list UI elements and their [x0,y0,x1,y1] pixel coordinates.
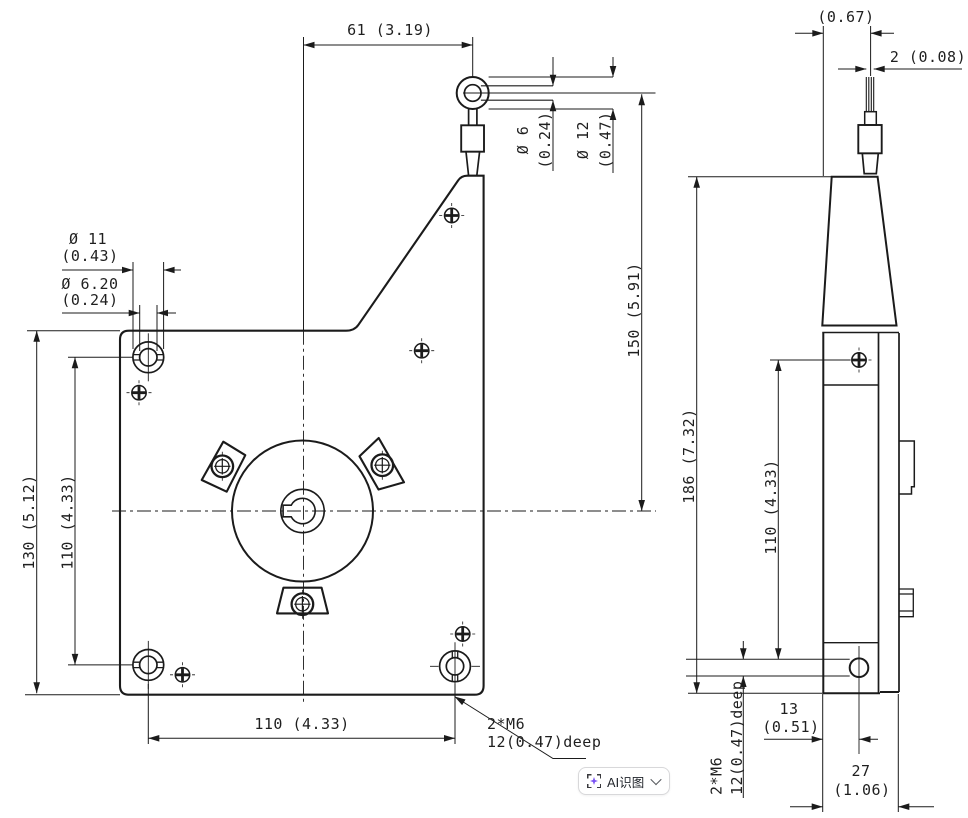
dim-label: (0.67) [817,8,874,26]
dim-label: (0.47) [597,111,615,168]
connector-tab-lower [899,589,913,617]
dim-label: Ø 12 [574,121,592,159]
dim-label: Ø 11 [69,230,107,248]
dim-label: (0.24) [61,291,118,309]
front-view: 61 (3.19) Ø 6 (0.24) Ø 12 (0.47) 150 (5.… [20,21,656,759]
dim-label: 130 (5.12) [20,474,38,569]
dim-label: (1.06) [833,781,890,799]
dim-side-bottom: 13 (0.51) 27 (1.06) [762,694,934,812]
dim-label: 27 [851,762,870,780]
screw-cross [450,622,475,647]
dim-pin-height: 150 (5.91) [625,94,645,511]
thread-note: 12(0.47)deep [487,733,601,751]
side-view: (0.67) 2 (0.08) 186 (7.32) 110 (4.33) 2*… [680,8,966,812]
dim-label: (0.24) [536,111,554,168]
dim-label: 13 [779,700,798,718]
dim-side-top: (0.67) 2 (0.08) [795,8,966,176]
dim-front-heights: 130 (5.12) 110 (4.33) [20,331,133,695]
thread-note: 2*M6 [708,757,726,795]
dim-label: 61 (3.19) [347,21,433,39]
corner-hole-bottom-right [430,642,480,690]
thread-note: 12(0.47)deep [728,681,746,795]
thread-note: 2*M6 [487,715,525,733]
dim-side-hole-spacing: 110 (4.33) [762,360,851,659]
corner-hole-top-left [133,333,164,381]
chevron-down-icon [651,774,662,785]
technical-drawing: 61 (3.19) Ø 6 (0.24) Ø 12 (0.47) 150 (5.… [0,0,968,818]
dim-label: Ø 6 [514,126,532,155]
ai-sparkle-icon [587,774,601,788]
front-body-outline [120,176,484,695]
side-body [822,177,914,754]
dim-side-total-height: 186 (7.32) [680,177,832,694]
front-centerlines [112,331,656,704]
dim-pin-diameters: Ø 6 (0.24) Ø 12 (0.47) [514,57,616,173]
dim-label: (0.51) [762,718,819,736]
dim-front-top-width: 61 (3.19) [304,21,473,331]
dim-label: 186 (7.32) [680,408,698,503]
side-plunger [858,77,881,174]
screw-cross [439,203,464,228]
dim-label: 110 (4.33) [762,459,780,554]
dim-label: 110 (4.33) [59,474,77,569]
motor-mount [202,438,404,619]
screw-cross [127,380,152,405]
connector-tab-upper [899,441,914,494]
dim-label: 2 (0.08) [890,48,966,66]
drawing-canvas: 61 (3.19) Ø 6 (0.24) Ø 12 (0.47) 150 (5.… [0,0,968,818]
dim-label: 150 (5.91) [625,262,643,357]
ai-recognize-button[interactable]: AI识图 [578,767,670,795]
dim-label: (0.43) [61,247,118,265]
eyelet-pin [457,77,656,176]
screw-cross [170,662,195,687]
ai-button-label: AI识图 [607,772,644,791]
screw-cross [409,338,434,363]
corner-hole-bottom-left [133,641,164,689]
dim-label: 110 (4.33) [254,715,349,733]
